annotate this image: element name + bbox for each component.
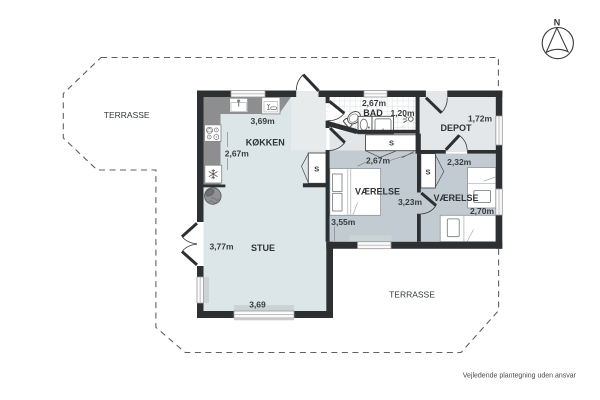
svg-text:2,32m: 2,32m: [447, 157, 472, 167]
svg-text:S: S: [314, 165, 319, 174]
svg-text:VÆRELSE: VÆRELSE: [433, 193, 478, 203]
svg-text:3,77m: 3,77m: [209, 242, 234, 252]
svg-text:BAD: BAD: [363, 108, 383, 118]
svg-text:KØKKEN: KØKKEN: [246, 137, 285, 147]
svg-text:1,72m: 1,72m: [468, 114, 493, 124]
svg-text:DEPOT: DEPOT: [440, 123, 472, 133]
svg-text:3,55m: 3,55m: [331, 217, 356, 227]
svg-text:2,67m: 2,67m: [225, 149, 250, 159]
svg-text:Vejledende plantegning uden an: Vejledende plantegning uden ansvar: [463, 373, 577, 380]
svg-text:S: S: [389, 138, 394, 147]
svg-text:3,69: 3,69: [249, 300, 266, 310]
svg-text:1,20m: 1,20m: [390, 108, 415, 118]
svg-text:3,69m: 3,69m: [251, 116, 276, 126]
svg-text:VÆRELSE: VÆRELSE: [355, 187, 400, 197]
svg-text:2,70m: 2,70m: [470, 206, 495, 216]
svg-text:S: S: [425, 168, 430, 177]
svg-text:2,67m: 2,67m: [362, 98, 387, 108]
svg-text:TERRASSE: TERRASSE: [104, 110, 150, 120]
svg-text:N: N: [554, 18, 561, 28]
svg-text:3,23m: 3,23m: [398, 197, 423, 207]
svg-text:2,67m: 2,67m: [366, 156, 391, 166]
svg-text:TERRASSE: TERRASSE: [389, 290, 435, 300]
svg-text:STUE: STUE: [251, 243, 275, 253]
